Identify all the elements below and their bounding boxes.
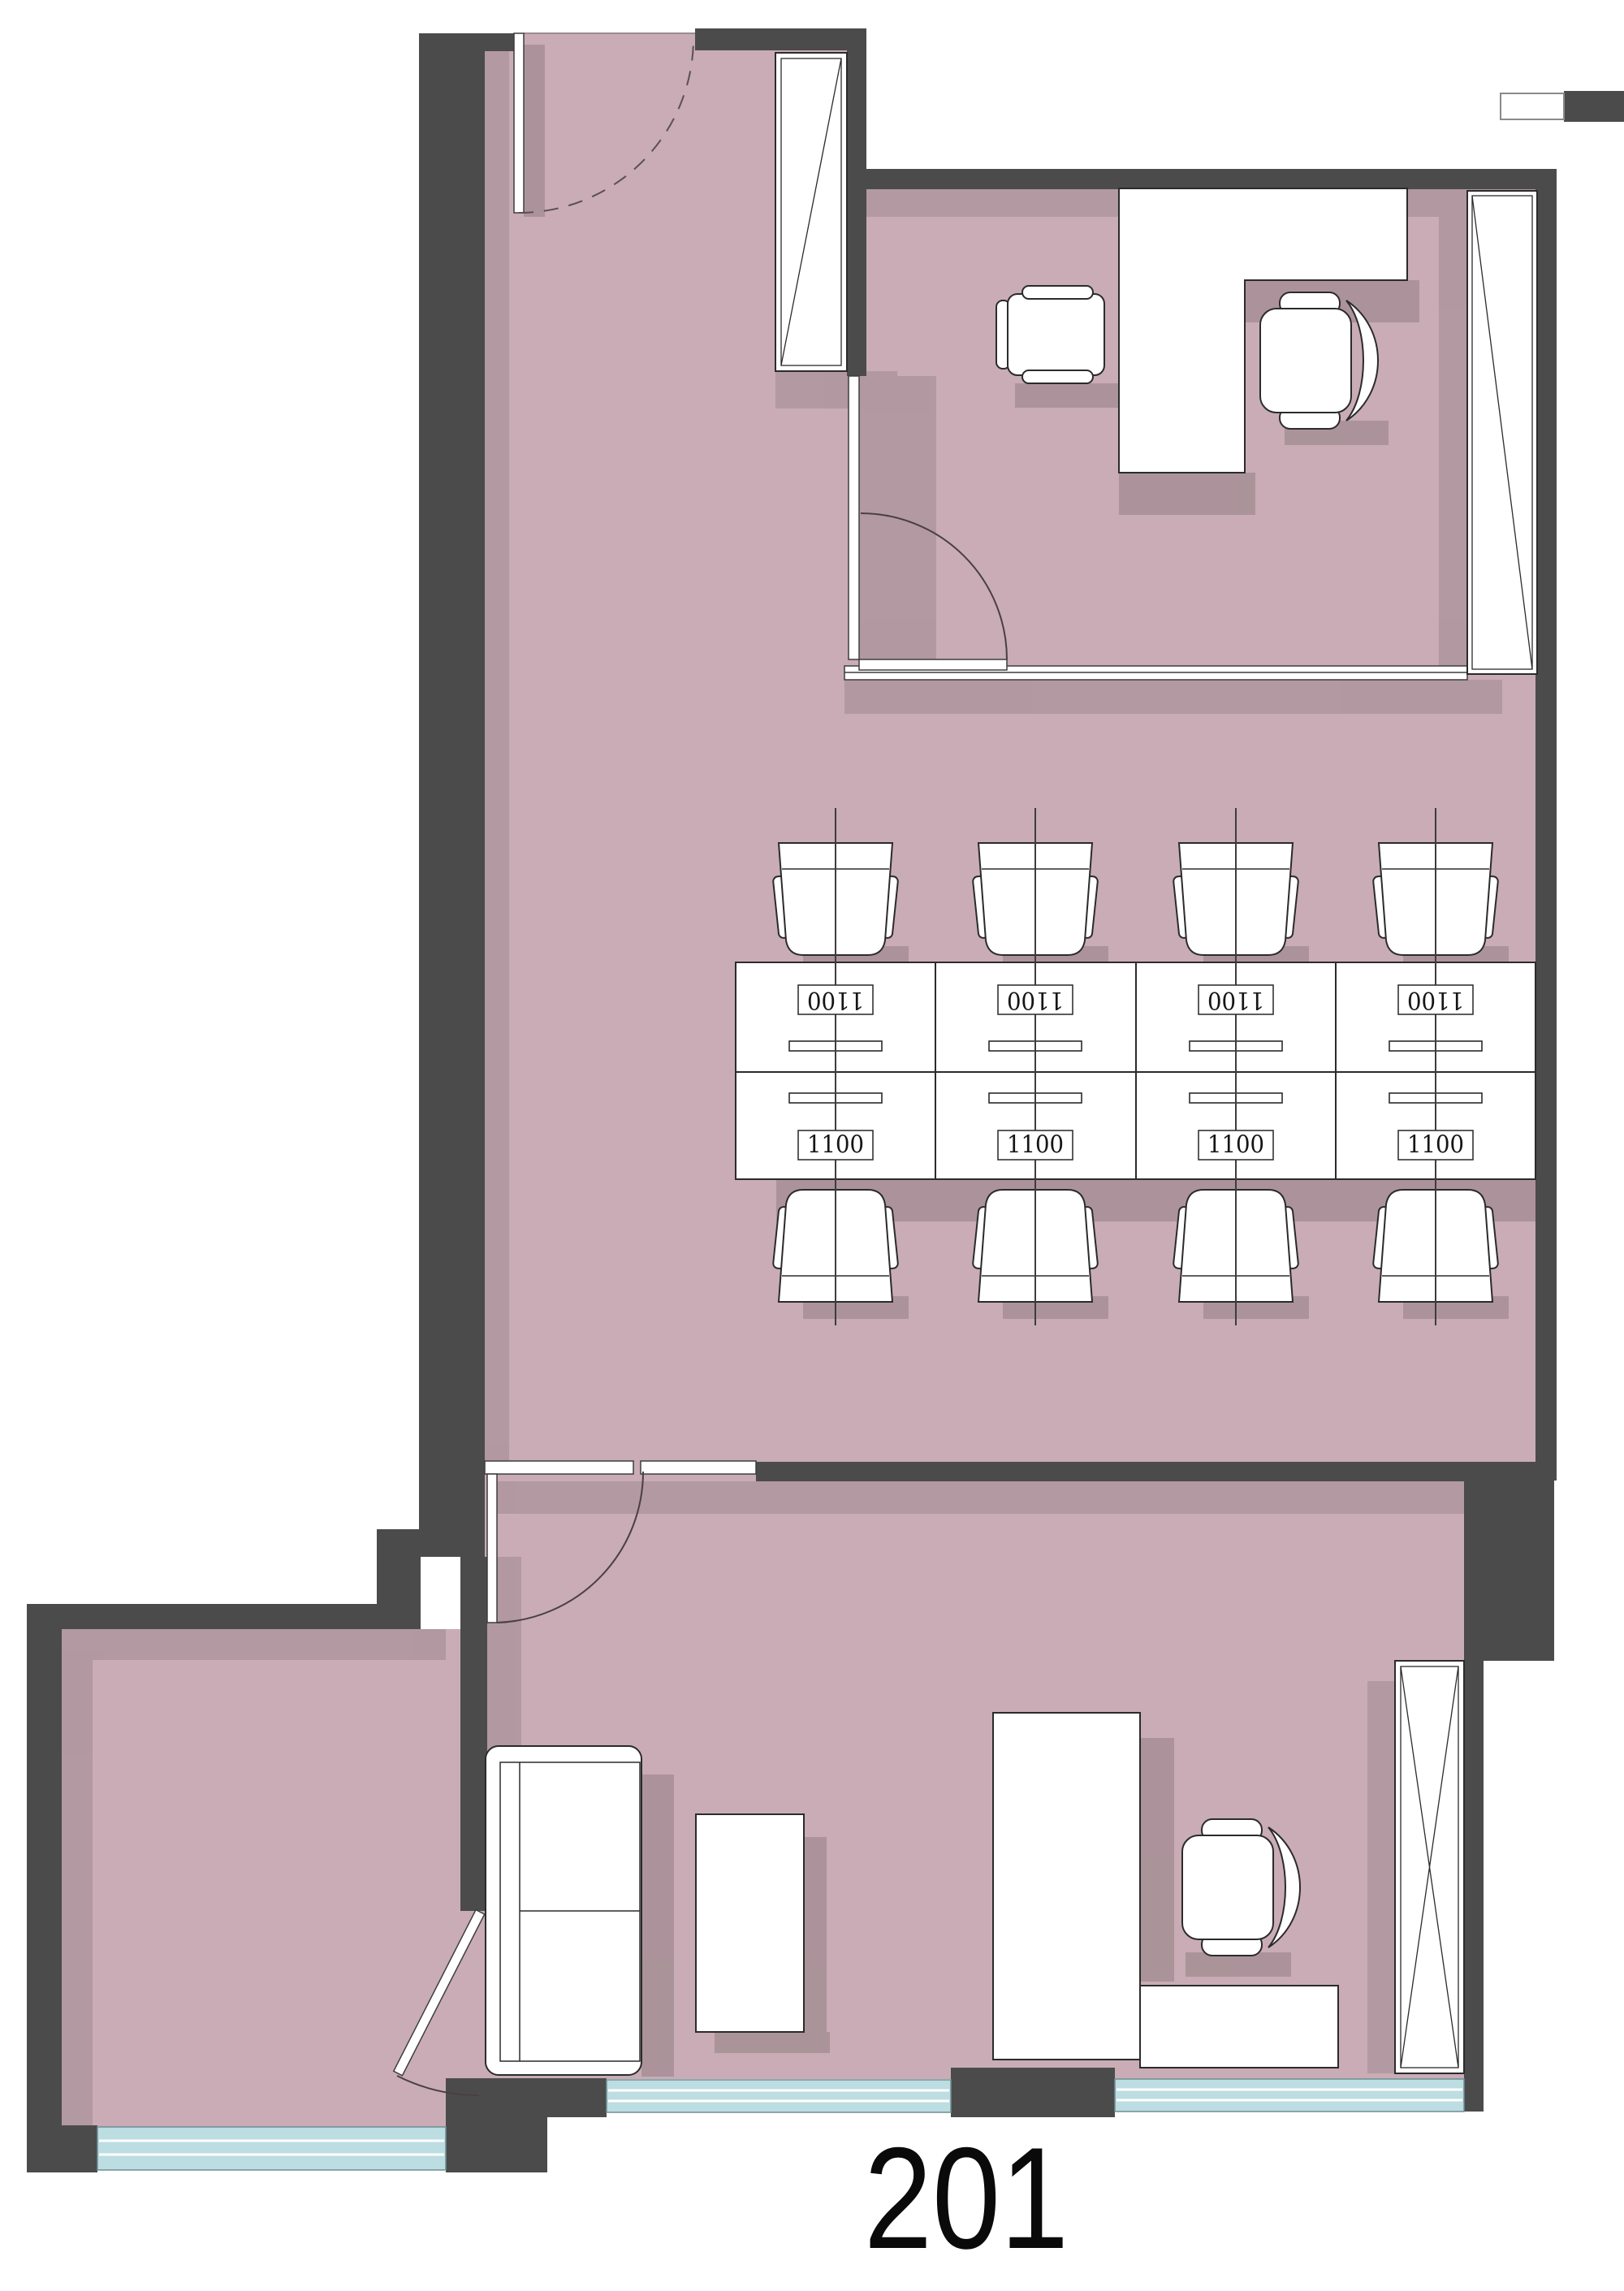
wall-bottom-pier-a2 bbox=[446, 2117, 547, 2172]
desk-dimension-label: 1100 bbox=[1207, 1131, 1264, 1160]
desk-dimension-label: 1100 bbox=[1407, 1131, 1464, 1160]
desk-dimension-label: 1100 bbox=[1207, 986, 1264, 1014]
floor-plan-canvas: 1100 1100 1100 1100 1100 1100 1100 1100 … bbox=[0, 0, 1624, 2291]
wall-lounge-left bbox=[460, 1557, 487, 1911]
wall-neighbor-top-right bbox=[1564, 91, 1624, 122]
shadow-sofa bbox=[641, 1774, 674, 2077]
shadow-desk bbox=[1119, 473, 1255, 515]
window-lounge-right bbox=[1115, 2079, 1464, 2112]
desk-dimension-label: 1100 bbox=[1007, 986, 1064, 1014]
glass-divider-right bbox=[641, 1461, 756, 1474]
glass-office-left bbox=[849, 376, 859, 659]
cabinet-lounge-right bbox=[1395, 1661, 1464, 2073]
wall-top-left bbox=[419, 33, 524, 51]
wall-bottom-pier-b bbox=[951, 2068, 1115, 2117]
wall-top-right bbox=[695, 28, 866, 50]
wall-left-step-top bbox=[421, 1529, 485, 1557]
coffee-table bbox=[696, 1814, 804, 2032]
wall-bottom-pier-a bbox=[446, 2078, 607, 2117]
wall-lower-right bbox=[1464, 1661, 1484, 2112]
entry-door-leaf bbox=[514, 33, 524, 213]
wall-divider bbox=[756, 1462, 1554, 1481]
desk-dimension-label: 1100 bbox=[807, 986, 864, 1014]
sofa bbox=[486, 1746, 641, 2075]
window-small-room bbox=[97, 2127, 446, 2170]
desk-dimension-label: 1100 bbox=[1407, 986, 1464, 1014]
glass-divider-left bbox=[485, 1461, 633, 1474]
floor-small-room bbox=[62, 1629, 485, 2127]
wall-small-room-corner bbox=[27, 2125, 97, 2172]
office-door-leaf bbox=[859, 659, 1007, 670]
cabinet-office-right bbox=[1467, 191, 1537, 674]
wall-left bbox=[419, 33, 485, 1557]
wall-lower-right-block bbox=[1464, 1481, 1554, 1661]
office-guest-chair bbox=[996, 286, 1104, 383]
wall-right bbox=[1535, 189, 1557, 1481]
window-lounge-left bbox=[607, 2080, 951, 2112]
floor-plan-201: 1100 1100 1100 1100 1100 1100 1100 1100 … bbox=[0, 0, 1624, 2291]
wall-corridor-right bbox=[847, 50, 866, 376]
window-neighbor-top-right bbox=[1501, 93, 1564, 119]
wall-small-room-left bbox=[27, 1604, 62, 2172]
lounge-door-leaf bbox=[487, 1474, 497, 1623]
wall-left-step bbox=[377, 1529, 421, 1629]
shadow-lower-desk bbox=[1140, 1738, 1174, 1982]
desk-dimension-label: 1100 bbox=[1007, 1131, 1064, 1160]
cabinet-corridor bbox=[775, 53, 847, 371]
wall-small-room-top bbox=[27, 1604, 381, 1629]
plan-title: 201 bbox=[864, 2117, 1069, 2279]
desk-dimension-label: 1100 bbox=[807, 1131, 864, 1160]
wall-office-top bbox=[866, 169, 1557, 189]
